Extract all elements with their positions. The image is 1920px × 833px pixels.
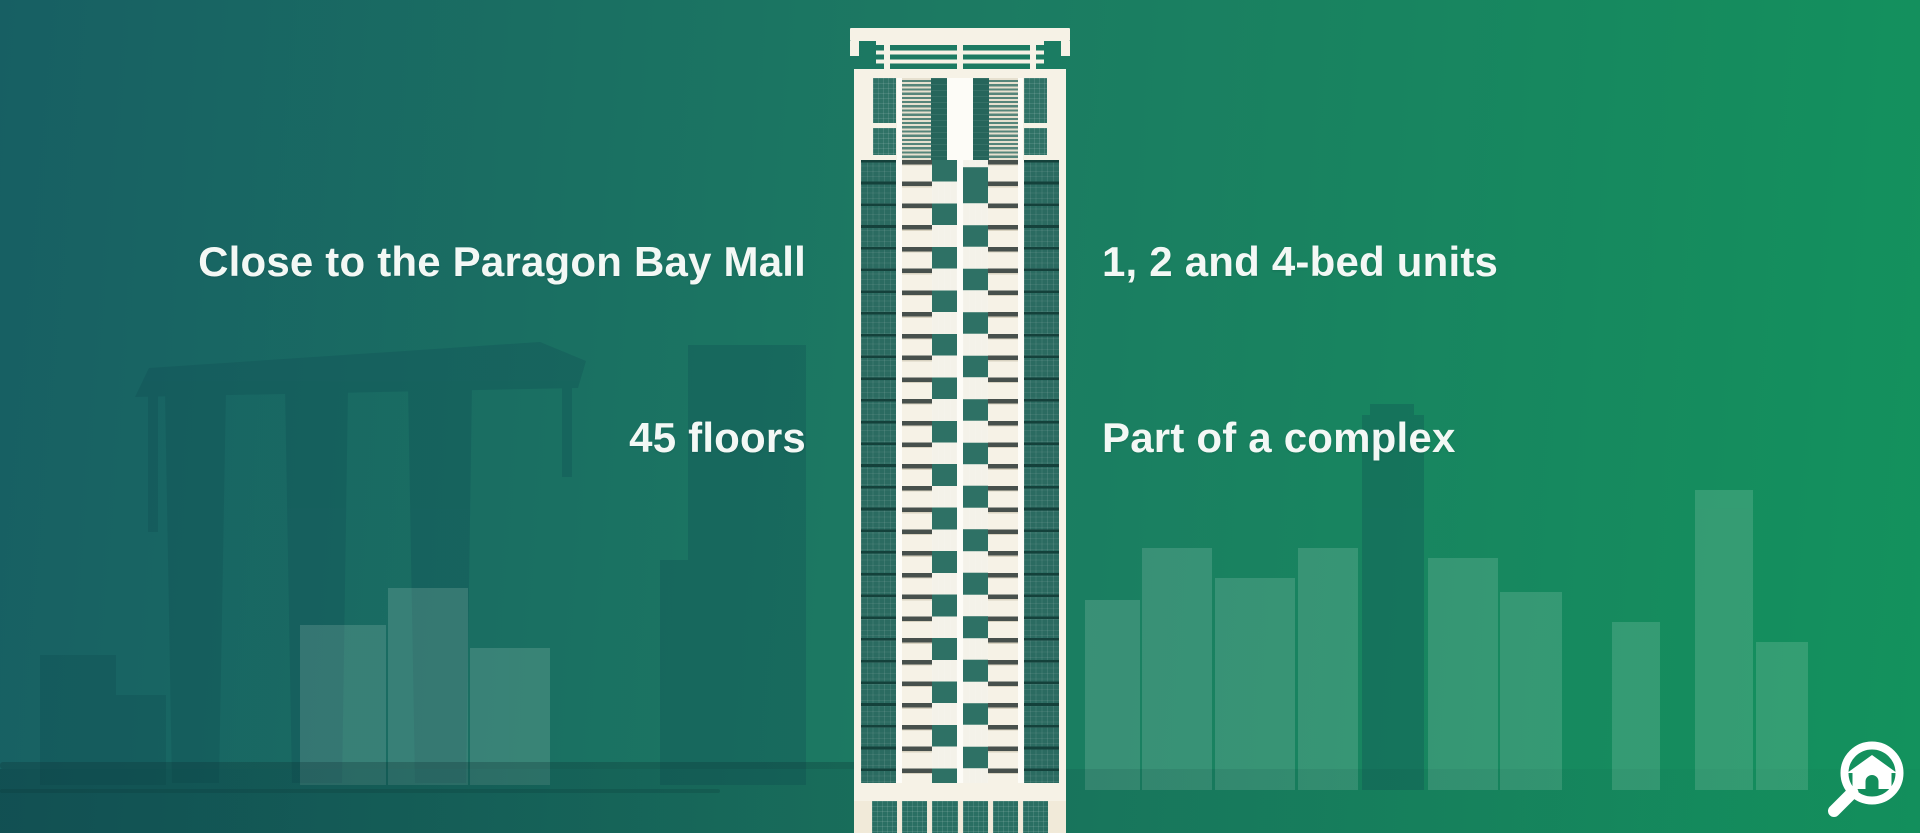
base-storefront xyxy=(854,801,1066,833)
infographic-canvas: Close to the Paragon Bay Mall 1, 2 and 4… xyxy=(0,0,1920,833)
right-dark-tower-silhouette xyxy=(1362,415,1424,790)
base-band xyxy=(854,783,1066,801)
tall-light-tower-silhouette xyxy=(1695,490,1753,790)
feature-bed-units: 1, 2 and 4-bed units xyxy=(1102,241,1498,283)
bridge-silhouette xyxy=(0,762,880,769)
building-base xyxy=(854,783,1066,833)
window-column-left xyxy=(932,160,957,783)
crown-cap-left xyxy=(850,41,859,56)
home-search-logo-icon xyxy=(1820,736,1914,830)
crown-cap-right xyxy=(1061,41,1070,56)
feature-complex: Part of a complex xyxy=(1102,417,1456,459)
balcony-column-right xyxy=(988,160,1018,783)
glass-curtain-wall-left xyxy=(861,160,896,783)
facade-center-strip xyxy=(957,160,963,783)
crown-window-block-right xyxy=(1023,78,1048,160)
feature-floors: 45 floors xyxy=(629,417,806,459)
building-illustration xyxy=(854,28,1066,833)
crown-window-block-left xyxy=(872,78,897,160)
crown-band xyxy=(854,69,1066,78)
building-facade xyxy=(854,160,1066,783)
window-column-right xyxy=(963,160,988,783)
crown-center-strip xyxy=(947,78,973,160)
crown-louvers xyxy=(876,41,1044,69)
left-tower-silhouette xyxy=(688,345,806,785)
feature-close-to-mall: Close to the Paragon Bay Mall xyxy=(198,241,806,283)
bridge-lower-silhouette xyxy=(0,789,720,793)
glass-curtain-wall-right xyxy=(1024,160,1059,783)
marina-deck-silhouette xyxy=(135,342,586,397)
balcony-column-left xyxy=(902,160,932,783)
building-crown xyxy=(854,28,1066,160)
crown-facade xyxy=(854,78,1066,160)
crown-cornice xyxy=(850,28,1070,41)
